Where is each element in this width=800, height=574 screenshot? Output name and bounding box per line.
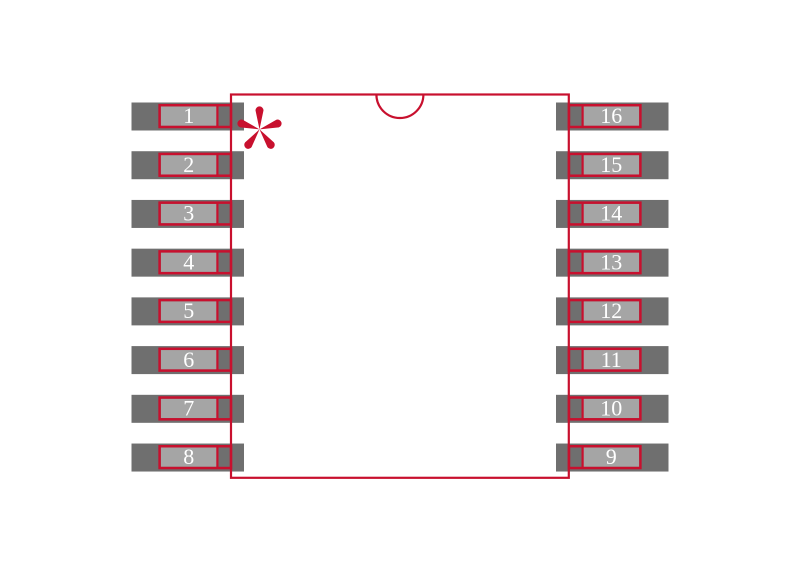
svg-text:5: 5 [183, 298, 194, 323]
svg-text:7: 7 [183, 396, 194, 421]
svg-text:10: 10 [600, 396, 622, 421]
svg-text:4: 4 [183, 249, 194, 274]
svg-text:2: 2 [183, 152, 194, 177]
svg-text:3: 3 [183, 201, 194, 226]
svg-text:13: 13 [600, 249, 622, 274]
svg-text:14: 14 [600, 201, 622, 226]
svg-text:12: 12 [600, 298, 622, 323]
svg-text:1: 1 [183, 103, 194, 128]
svg-text:6: 6 [183, 347, 194, 372]
svg-text:16: 16 [600, 103, 622, 128]
svg-text:11: 11 [601, 347, 622, 372]
svg-text:9: 9 [606, 444, 617, 469]
svg-text:15: 15 [600, 152, 622, 177]
svg-text:8: 8 [183, 444, 194, 469]
